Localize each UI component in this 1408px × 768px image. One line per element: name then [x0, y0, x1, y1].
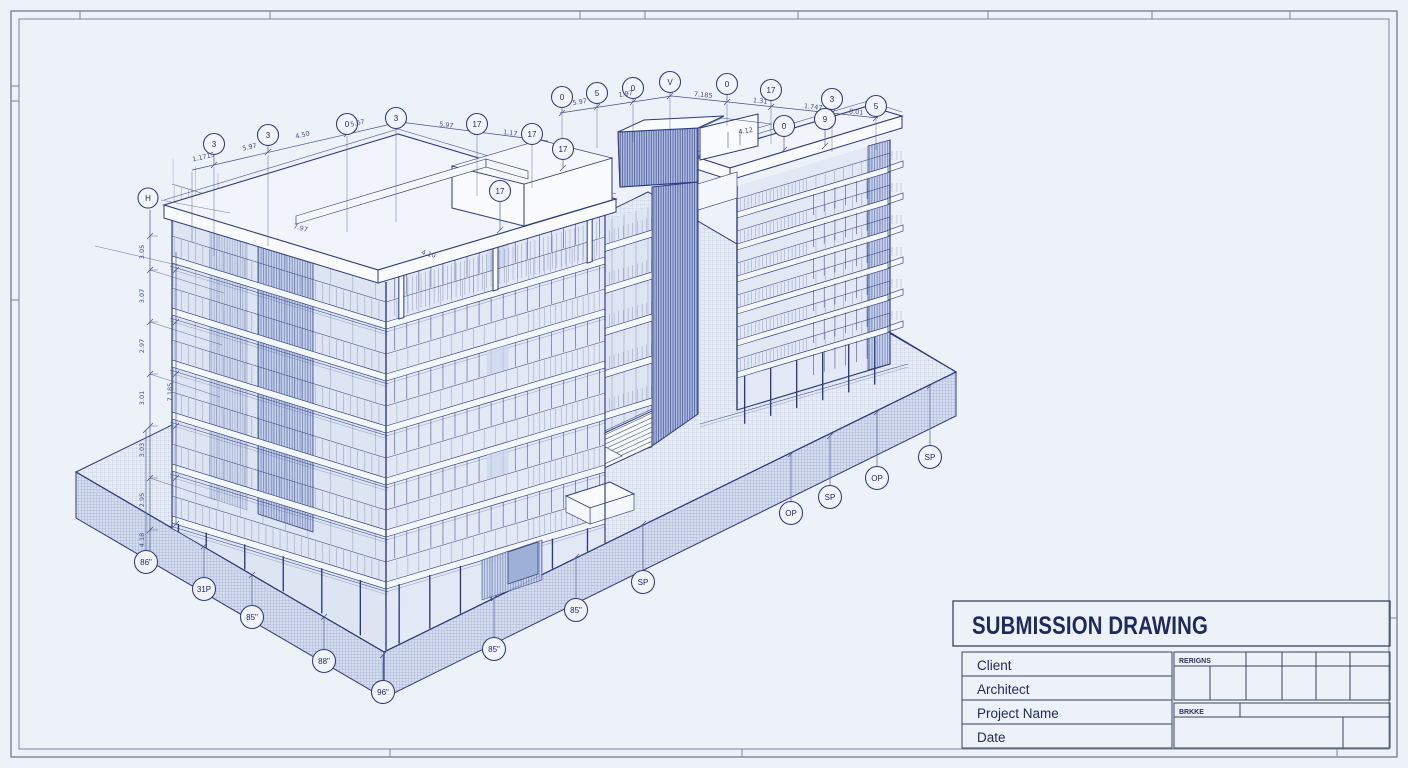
- svg-text:3: 3: [266, 131, 271, 140]
- svg-text:85": 85": [570, 606, 582, 615]
- svg-text:OP: OP: [785, 509, 797, 518]
- dimension-text: 3.07: [138, 289, 146, 303]
- grid-bubble: 3: [386, 108, 407, 129]
- svg-text:0: 0: [782, 122, 787, 131]
- project-name-row-label: Project Name: [977, 706, 1059, 721]
- client-row-label: Client: [977, 658, 1012, 673]
- svg-text:86": 86": [140, 558, 152, 567]
- svg-text:5: 5: [595, 89, 600, 98]
- dimension-text: 2.97: [138, 339, 146, 353]
- svg-text:3: 3: [394, 114, 399, 123]
- dimension-text: 5.97: [242, 142, 258, 153]
- svg-text:0: 0: [560, 93, 565, 102]
- svg-text:17: 17: [559, 145, 568, 154]
- revisions-table: RERIGNS: [1174, 652, 1390, 700]
- svg-text:85": 85": [488, 645, 500, 654]
- svg-text:H: H: [145, 194, 151, 203]
- svg-text:17: 17: [473, 120, 482, 129]
- dimension-text: 1.1715: [192, 151, 216, 164]
- svg-text:96": 96": [377, 688, 389, 697]
- issue-table: BRKKE: [1174, 703, 1390, 748]
- building-isometric-drawing: [76, 96, 956, 698]
- title-block-title: SUBMISSION DRAWING: [972, 612, 1208, 640]
- grid-bubble: 3: [204, 134, 225, 169]
- svg-text:31P: 31P: [197, 585, 211, 594]
- dimension-text: 5.97: [439, 120, 454, 130]
- issue-label: BRKKE: [1179, 709, 1204, 716]
- grid-bubble: 17: [522, 124, 543, 145]
- dimension-text: 3.05: [138, 245, 146, 259]
- svg-text:17: 17: [528, 130, 537, 139]
- dimension-text: 3.03: [138, 443, 146, 457]
- dimension-text: 8.01: [849, 107, 864, 116]
- dimension-text: 1.31: [753, 96, 768, 105]
- svg-text:17: 17: [767, 86, 776, 95]
- dimension-text: 1.17: [503, 128, 518, 138]
- svg-text:0: 0: [725, 80, 730, 89]
- dimension-text: 7.185: [166, 383, 174, 402]
- dimension-text: 4.18: [138, 533, 146, 547]
- dimension-text: 2.95: [138, 493, 146, 507]
- grid-bubble: 0: [717, 74, 738, 106]
- date-row-label: Date: [977, 730, 1006, 745]
- svg-text:V: V: [667, 78, 673, 87]
- dimension-text: 4.50: [295, 130, 311, 141]
- svg-text:5: 5: [874, 102, 879, 111]
- svg-text:17: 17: [496, 187, 505, 196]
- dimension-text: 5.97: [572, 97, 588, 107]
- svg-text:88": 88": [318, 657, 330, 666]
- grid-bubble: V: [660, 72, 681, 100]
- svg-text:SP: SP: [638, 578, 649, 587]
- svg-text:3: 3: [212, 140, 217, 149]
- title-block: SUBMISSION DRAWING Client Architect Proj…: [953, 601, 1390, 756]
- dimension-text: 3.01: [138, 391, 146, 405]
- revisions-label: RERIGNS: [1179, 658, 1211, 665]
- blueprint-sheet: 33031717050V01735171709H86"31P85"88"96"8…: [0, 0, 1408, 768]
- level-dim-bubble: H: [138, 188, 158, 208]
- svg-text:9: 9: [823, 115, 828, 124]
- svg-text:OP: OP: [871, 474, 883, 483]
- svg-text:SP: SP: [925, 453, 936, 462]
- grid-bubble: 5: [587, 83, 608, 111]
- svg-text:SP: SP: [825, 493, 836, 502]
- grid-bubble: 17: [761, 80, 782, 111]
- drawing-canvas: 33031717050V01735171709H86"31P85"88"96"8…: [0, 0, 1408, 768]
- architect-row-label: Architect: [977, 682, 1030, 697]
- svg-text:85": 85": [246, 613, 258, 622]
- svg-text:3: 3: [830, 95, 835, 104]
- grid-bubble: 17: [467, 114, 488, 136]
